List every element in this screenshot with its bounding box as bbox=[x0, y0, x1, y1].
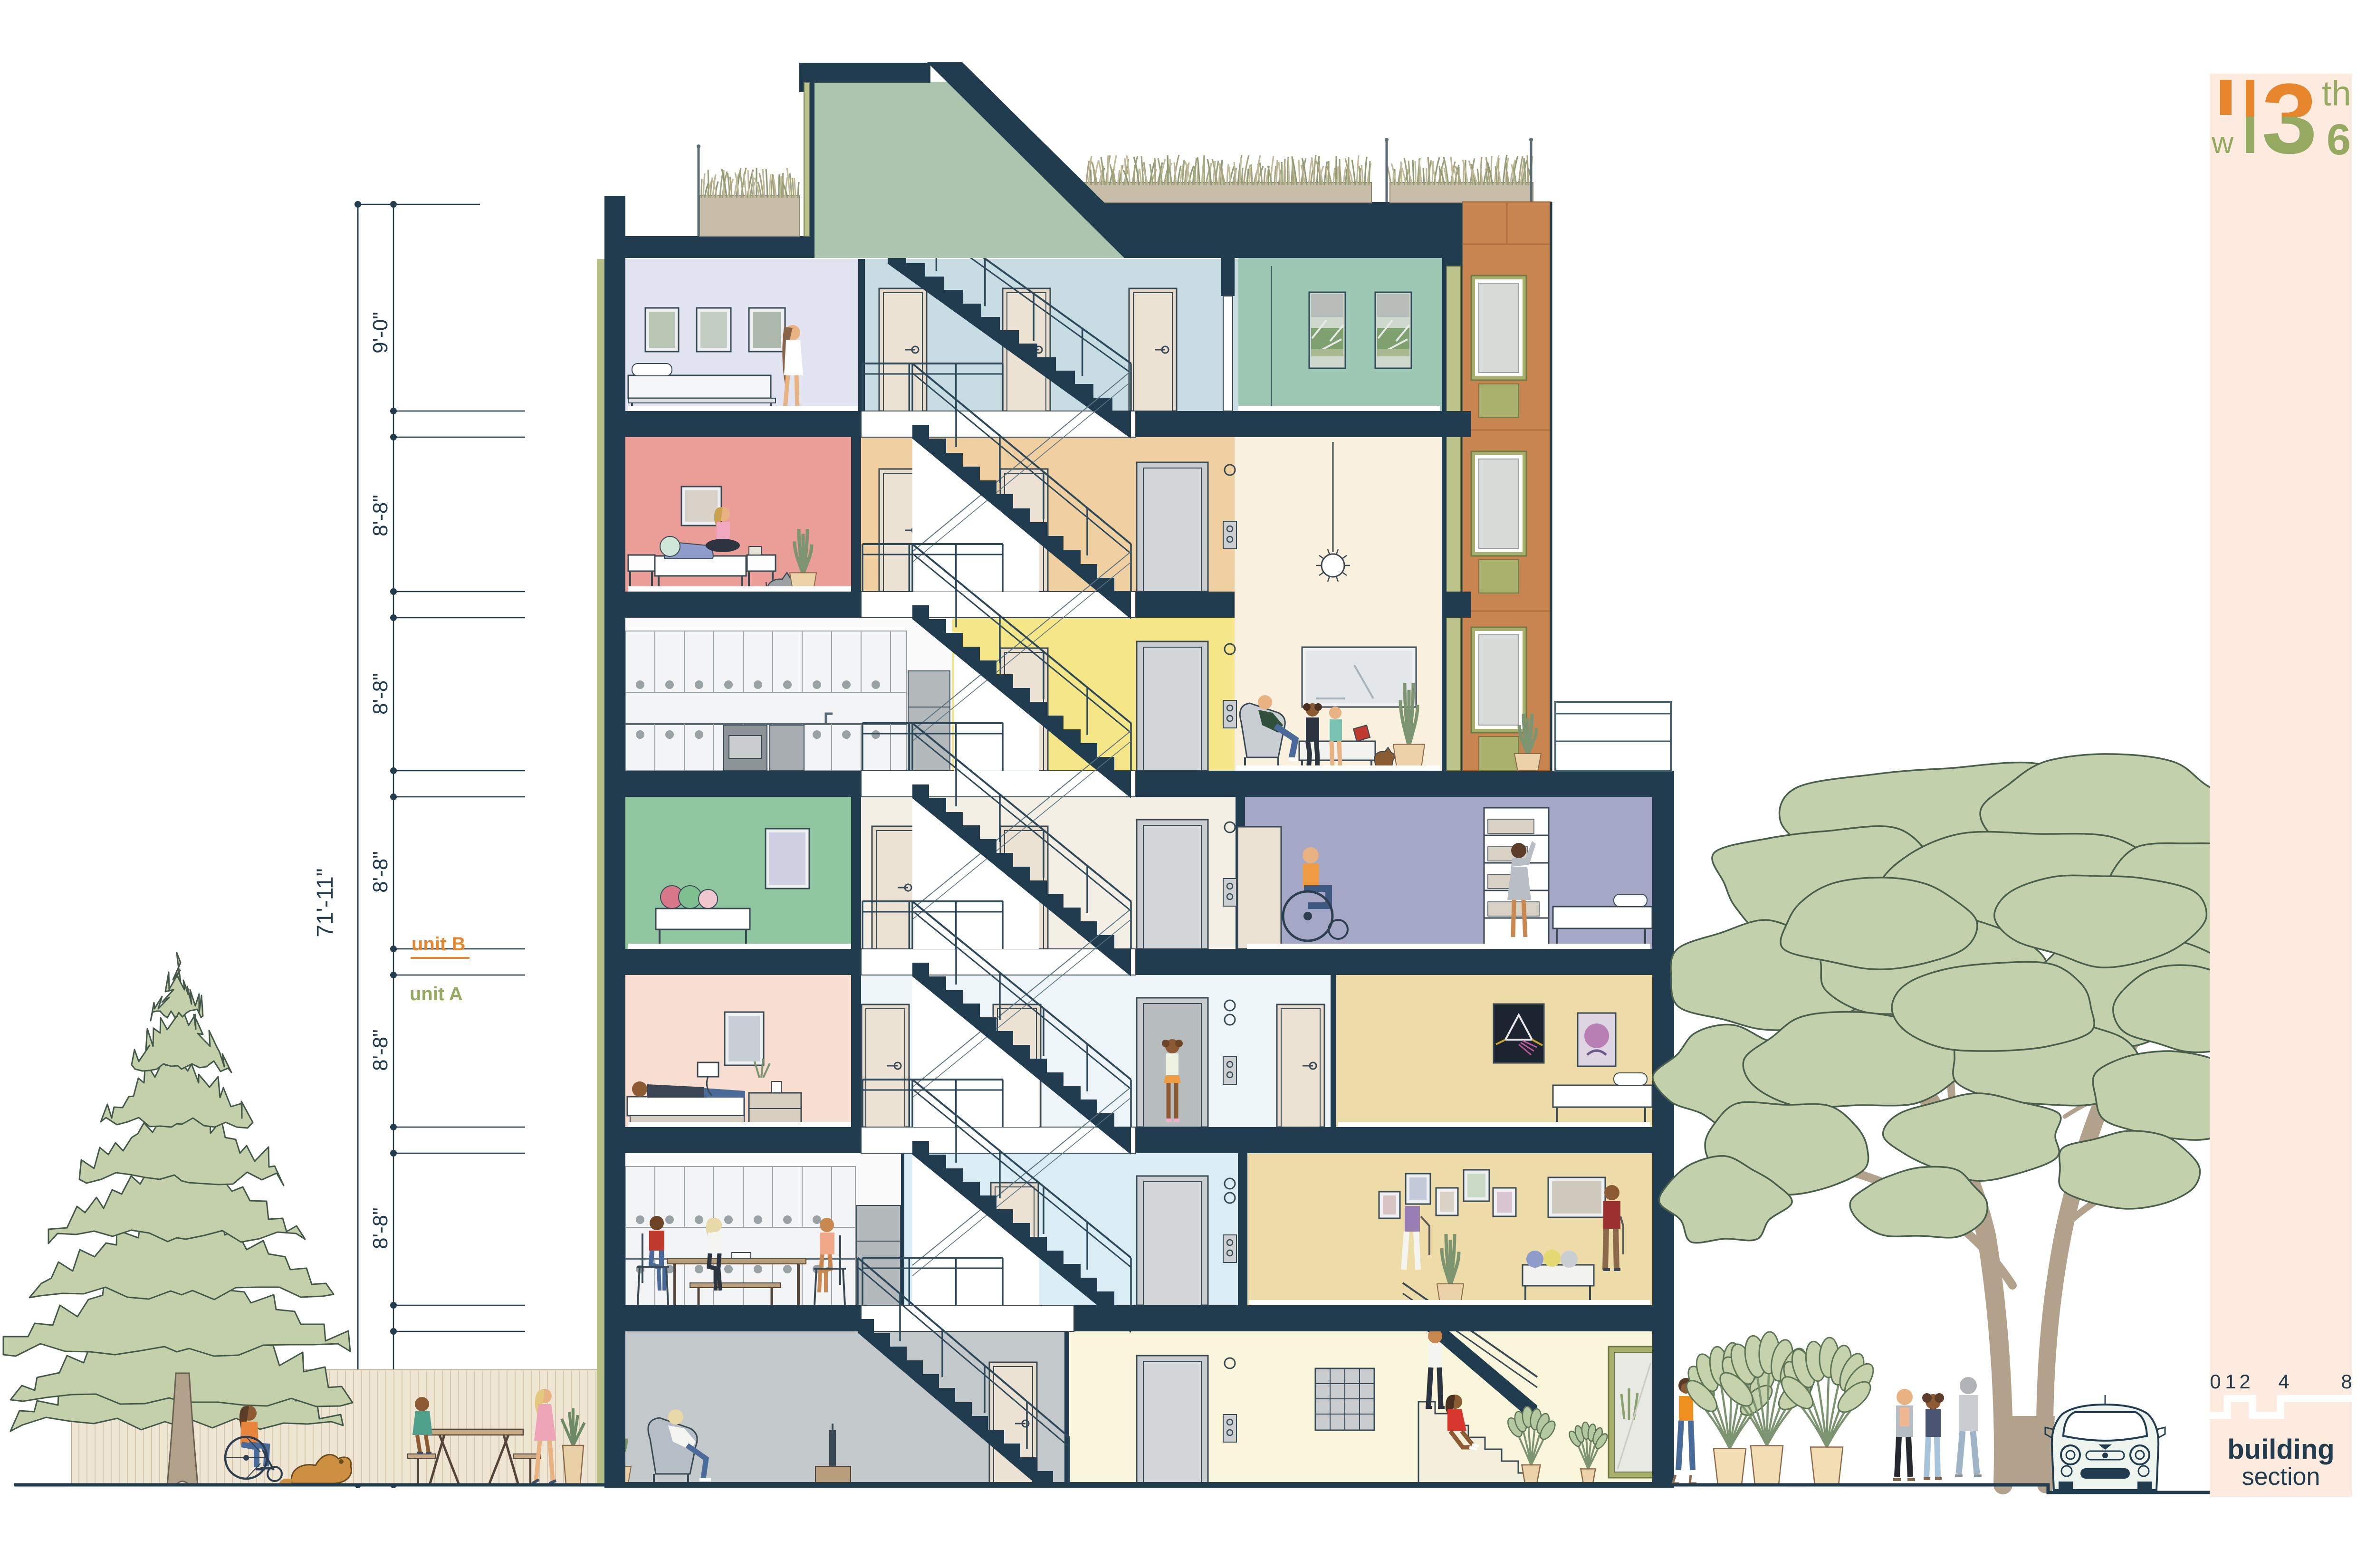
svg-text:8'-8": 8'-8" bbox=[369, 851, 392, 893]
svg-text:8'-8": 8'-8" bbox=[369, 1207, 392, 1249]
svg-text:9'-0": 9'-0" bbox=[369, 312, 392, 354]
svg-text:unit A: unit A bbox=[410, 984, 463, 1004]
svg-text:1: 1 bbox=[2225, 1370, 2236, 1393]
svg-text:8'-8": 8'-8" bbox=[369, 495, 392, 536]
svg-text:building: building bbox=[2227, 1434, 2335, 1465]
svg-text:6: 6 bbox=[2327, 115, 2351, 164]
svg-text:2: 2 bbox=[2239, 1370, 2250, 1393]
svg-text:8'-8": 8'-8" bbox=[369, 1029, 392, 1071]
svg-text:unit B: unit B bbox=[412, 934, 465, 955]
svg-text:section: section bbox=[2242, 1463, 2320, 1491]
svg-text:0: 0 bbox=[2210, 1370, 2221, 1393]
svg-text:71'-11": 71'-11" bbox=[313, 868, 338, 937]
svg-text:w: w bbox=[2211, 125, 2234, 160]
svg-text:th: th bbox=[2322, 74, 2351, 113]
svg-text:8: 8 bbox=[2341, 1370, 2352, 1393]
svg-text:4: 4 bbox=[2278, 1370, 2289, 1393]
svg-text:8'-8": 8'-8" bbox=[369, 673, 392, 715]
